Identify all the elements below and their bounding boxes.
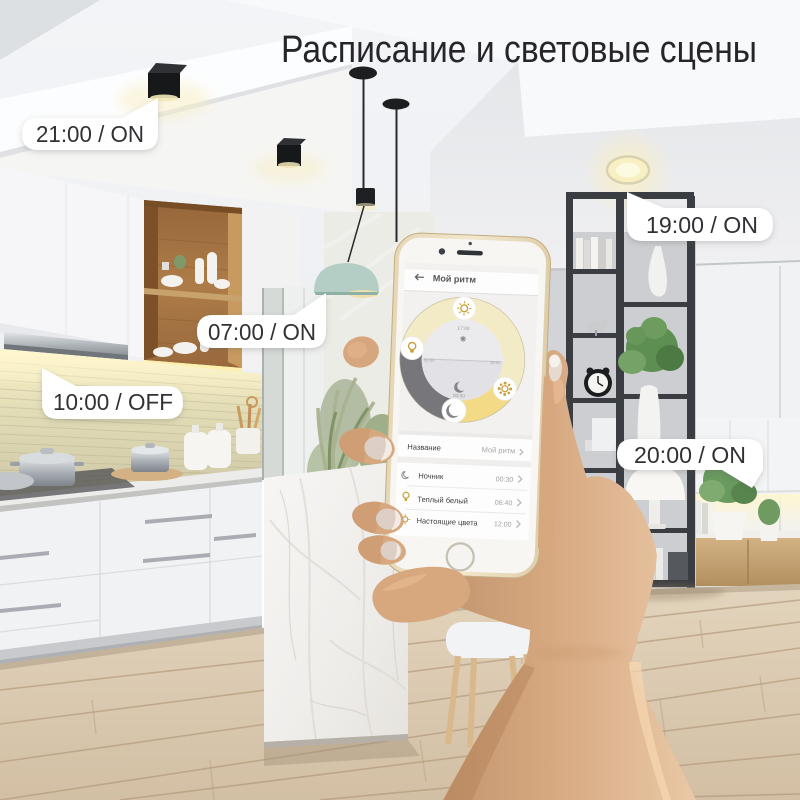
svg-text:12:00: 12:00 [494, 521, 512, 529]
svg-text:21:00 / ON: 21:00 / ON [36, 121, 144, 147]
svg-text:06:00: 06:00 [424, 357, 435, 362]
svg-text:07:00 / ON: 07:00 / ON [208, 319, 316, 345]
svg-text:Ночник: Ночник [418, 471, 444, 481]
svg-text:Мой ритм: Мой ритм [433, 273, 477, 285]
svg-text:17:00: 17:00 [457, 326, 470, 332]
svg-text:19:00 / ON: 19:00 / ON [646, 212, 758, 238]
svg-text:Расписание и световые сцены: Расписание и световые сцены [281, 29, 757, 71]
svg-text:10:00 / OFF: 10:00 / OFF [53, 389, 173, 415]
svg-text:00:30: 00:30 [496, 476, 514, 484]
svg-text:18:00: 18:00 [490, 360, 501, 365]
svg-text:06:40: 06:40 [495, 500, 513, 508]
svg-text:20:00 / ON: 20:00 / ON [634, 442, 746, 468]
svg-text:Мой ритм: Мой ритм [481, 445, 515, 455]
svg-text:Название: Название [407, 442, 441, 452]
